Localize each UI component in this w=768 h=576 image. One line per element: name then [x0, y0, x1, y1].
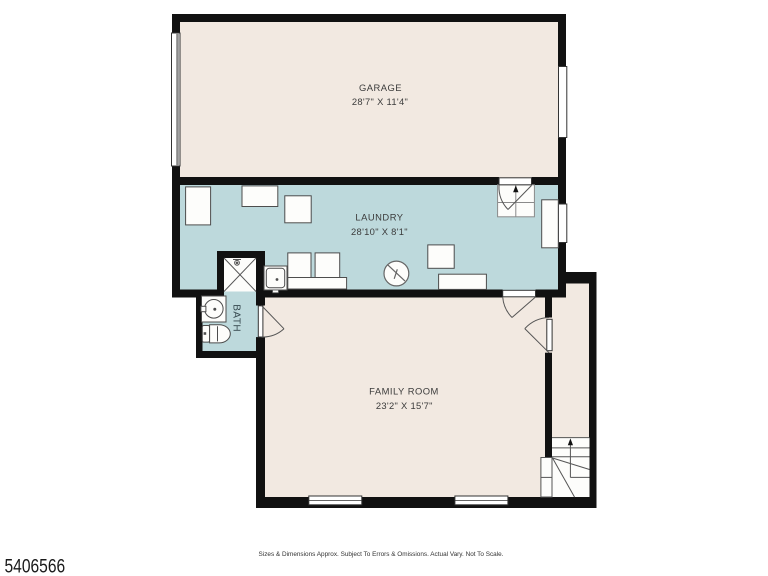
svg-text:GARAGE: GARAGE	[359, 82, 402, 93]
svg-text:FAMILY ROOM: FAMILY ROOM	[369, 386, 439, 397]
svg-text:Sizes & Dimensions Approx. Sub: Sizes & Dimensions Approx. Subject To Er…	[259, 551, 504, 558]
svg-text:28'7" X 11'4": 28'7" X 11'4"	[352, 96, 408, 107]
svg-text:LAUNDRY: LAUNDRY	[355, 212, 403, 223]
svg-text:23'2" X 15'7": 23'2" X 15'7"	[376, 400, 433, 411]
svg-text:5406566: 5406566	[5, 555, 66, 576]
svg-text:28'10" X 8'1": 28'10" X 8'1"	[351, 226, 408, 237]
svg-text:BATH: BATH	[231, 304, 242, 332]
